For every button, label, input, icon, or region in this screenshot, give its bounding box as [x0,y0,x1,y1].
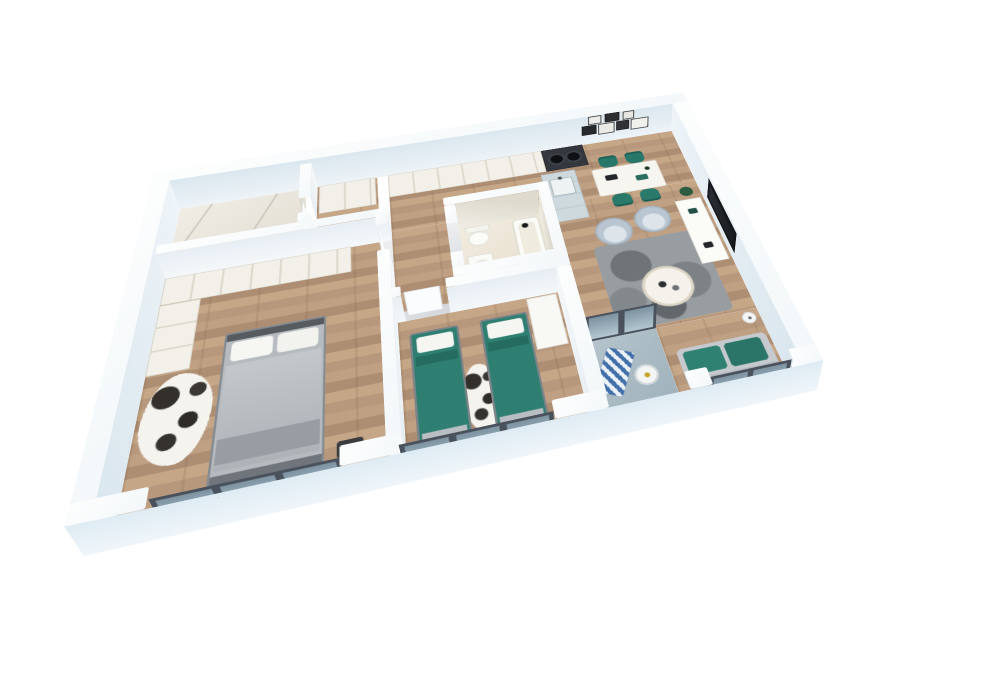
window-glass [624,306,653,333]
console-decor [687,208,698,215]
table-vase [644,166,650,170]
sofa-cushion [723,336,770,366]
floorplan-render-canvas [0,0,989,692]
gallery-frame [616,119,629,130]
gallery-frame [631,116,649,129]
table-cup [644,372,651,378]
console-decor [703,241,715,248]
lamp-stem [748,316,752,319]
window-glass [589,313,619,340]
sink-tap-icon [557,176,562,180]
floor-lamp [740,311,759,325]
gallery-frame [598,122,614,135]
coffee-table-decor [657,281,667,288]
apartment-plan [84,120,817,556]
bedroom2-door [403,285,443,316]
table-setting [605,174,619,181]
gallery-frame [582,124,597,136]
perspective-stage [0,0,989,692]
island-sink [549,177,576,197]
coffee-table-decor [671,284,680,291]
table-setting [635,174,649,181]
